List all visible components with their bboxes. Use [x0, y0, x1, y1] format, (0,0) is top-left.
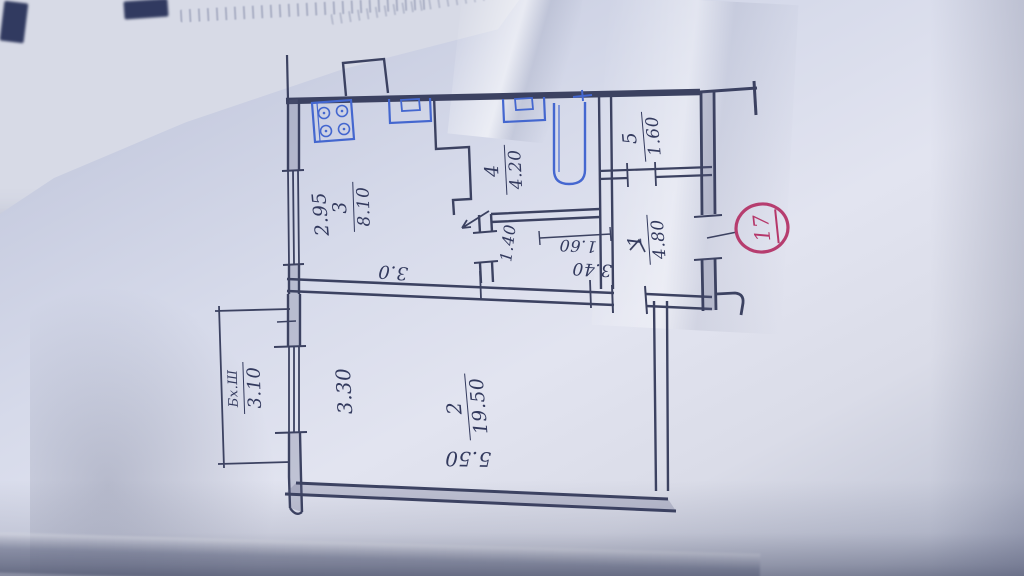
dimension-hall-length: 3.40 — [572, 258, 613, 280]
room-4-label: 44.20 — [481, 144, 527, 196]
balcony-window — [289, 347, 299, 432]
kitchen-window — [288, 171, 299, 264]
dimension-room2-length: 5.50 — [445, 447, 492, 472]
wall-fill — [288, 99, 299, 171]
dimension-room2-width: 3.30 — [331, 367, 357, 415]
room-2-label: 219.50 — [441, 372, 493, 443]
door-opening-ticks — [612, 285, 647, 314]
room-3-number: 3 — [331, 196, 354, 219]
balcony-label: Бх.Ш3.10 — [220, 361, 265, 415]
stove-icon — [312, 100, 354, 142]
corridor-wall — [479, 214, 493, 283]
top-outer-wall — [700, 88, 757, 92]
room-4-number: 4 — [483, 159, 506, 183]
wall-fill — [288, 294, 300, 346]
apartment-number: 17 — [748, 210, 779, 246]
room-1-area: 4.80 — [646, 214, 670, 265]
dimension-kitchen-length: 3.0 — [377, 260, 409, 283]
balcony-width: 3.10 — [242, 361, 266, 414]
room-5-number: 5 — [620, 126, 644, 150]
door-swing-arrow — [462, 211, 489, 228]
wall-end-tick — [754, 81, 756, 115]
bathtub-icon — [554, 90, 592, 184]
photo-of-floor-plan: 2.95 38.10 3.0 44.20 1.40 1.60 3.40 51.6… — [0, 0, 1024, 576]
dimension-hall-width: 1.60 — [559, 236, 598, 257]
stamp-leader-line — [707, 232, 737, 238]
vent-shaft — [343, 59, 388, 96]
wall-end-tick — [287, 55, 288, 100]
window-caps — [274, 346, 307, 433]
door-opening-ticks — [473, 231, 498, 263]
room-3-area: 8.10 — [352, 181, 375, 232]
room-2-number: 2 — [443, 395, 468, 420]
balcony-code: Бх.Ш — [226, 364, 243, 412]
kitchen-bath-wall — [434, 96, 471, 215]
room-1-label: 14.80 — [623, 214, 670, 267]
room-3-label: 38.10 — [329, 181, 374, 232]
apartment-number-stamp: 17 — [748, 210, 775, 246]
room2-right-wall — [654, 301, 668, 491]
room-4-area: 4.20 — [504, 144, 527, 195]
dimension-tick — [277, 321, 296, 322]
room-5-label: 51.60 — [618, 110, 666, 163]
floor-plan-drawing — [0, 0, 1024, 576]
bathroom-bottom-wall — [491, 209, 600, 222]
wall-hook-end — [716, 293, 743, 315]
room-1-number: 1 — [625, 229, 648, 253]
bath-sink-icon — [503, 97, 545, 122]
door-opening-ticks — [627, 162, 656, 187]
room-5-area: 1.60 — [641, 110, 666, 161]
